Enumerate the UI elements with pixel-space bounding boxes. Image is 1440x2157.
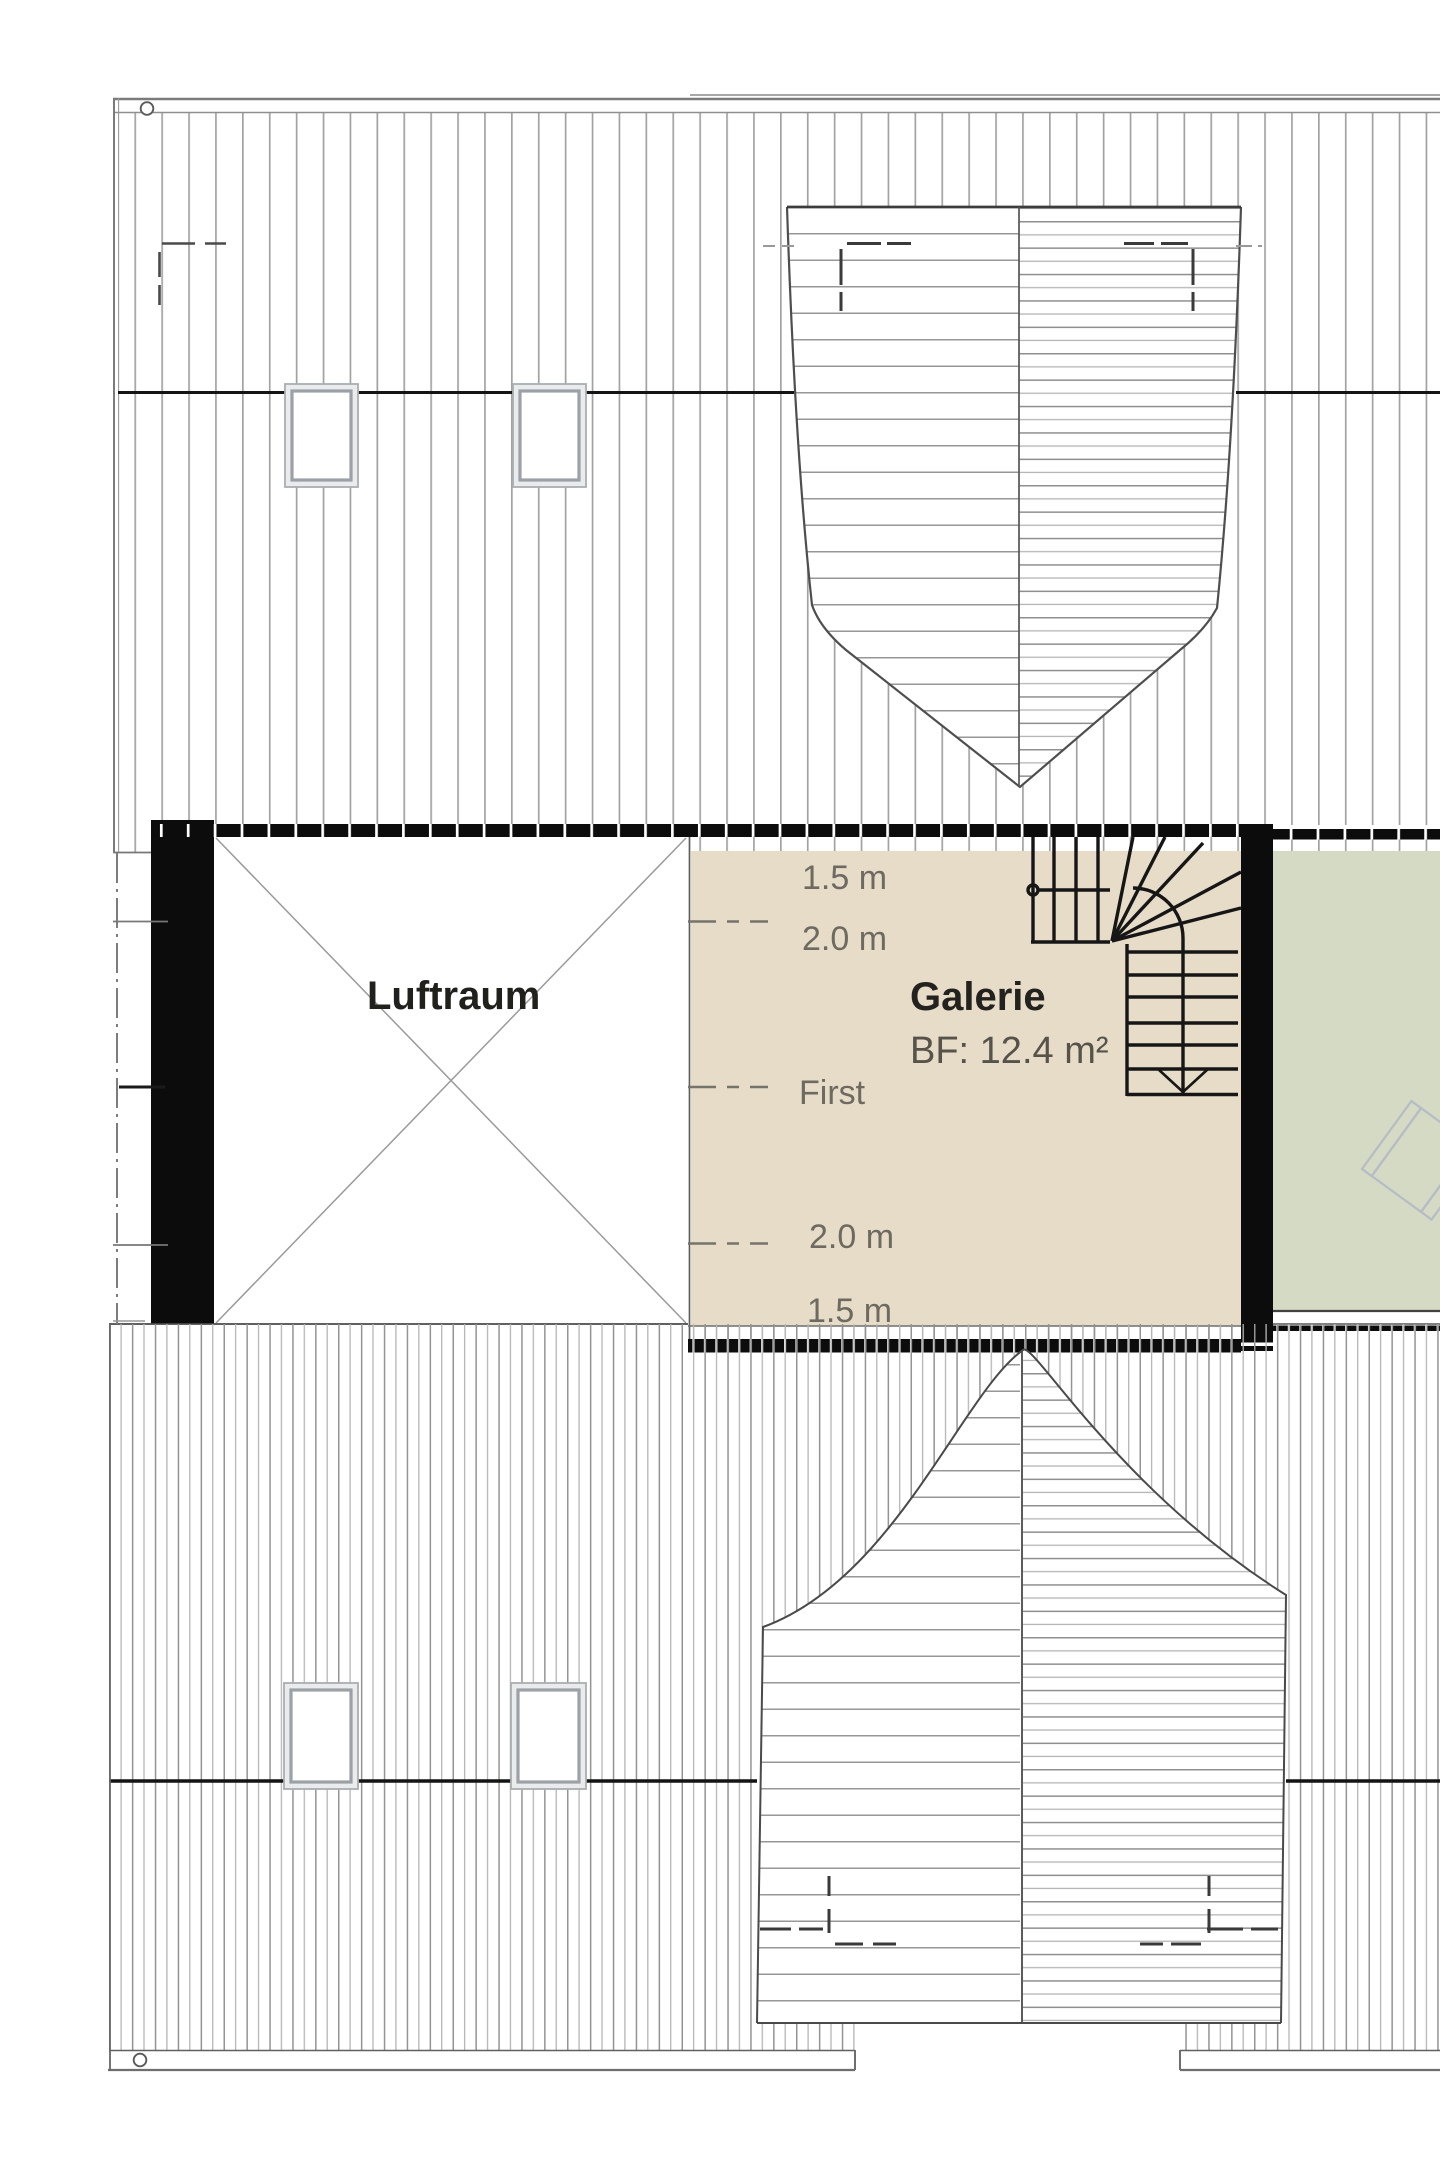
svg-text:1.5 m: 1.5 m xyxy=(802,859,887,897)
svg-text:First: First xyxy=(799,1074,866,1112)
svg-text:2.0 m: 2.0 m xyxy=(809,1218,894,1256)
svg-text:Luftraum: Luftraum xyxy=(367,974,540,1018)
svg-text:BF: 12.4 m²: BF: 12.4 m² xyxy=(910,1030,1109,1072)
svg-text:2.0 m: 2.0 m xyxy=(802,920,887,958)
svg-text:Galerie: Galerie xyxy=(910,975,1046,1019)
